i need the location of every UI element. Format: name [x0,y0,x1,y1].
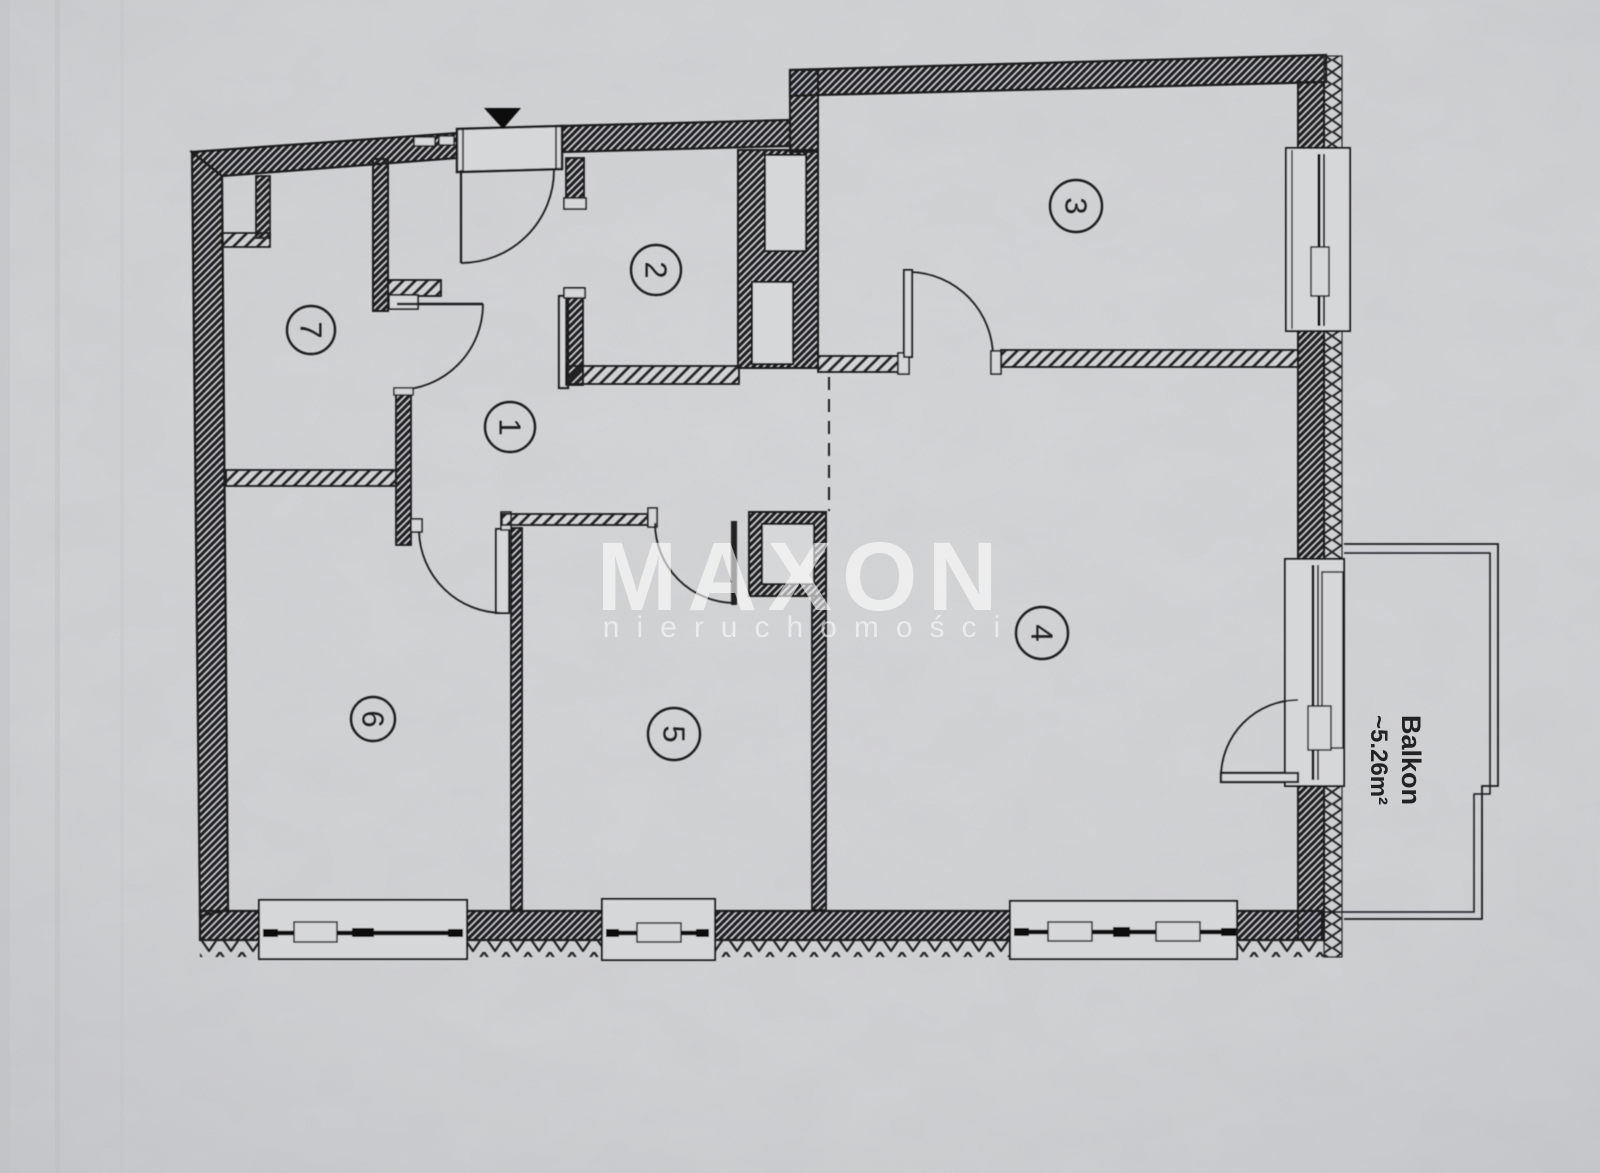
svg-text:2: 2 [639,261,674,278]
svg-text:nieruchomości: nieruchomości [603,611,1017,644]
svg-text:Balkon: Balkon [1396,715,1426,805]
svg-text:5: 5 [657,725,692,742]
svg-text:3: 3 [1059,197,1094,214]
svg-text:1: 1 [493,418,528,435]
svg-text:4: 4 [1025,624,1060,641]
svg-text:~5.26m²: ~5.26m² [1365,715,1392,805]
svg-text:7: 7 [294,321,329,338]
svg-text:6: 6 [356,710,391,727]
